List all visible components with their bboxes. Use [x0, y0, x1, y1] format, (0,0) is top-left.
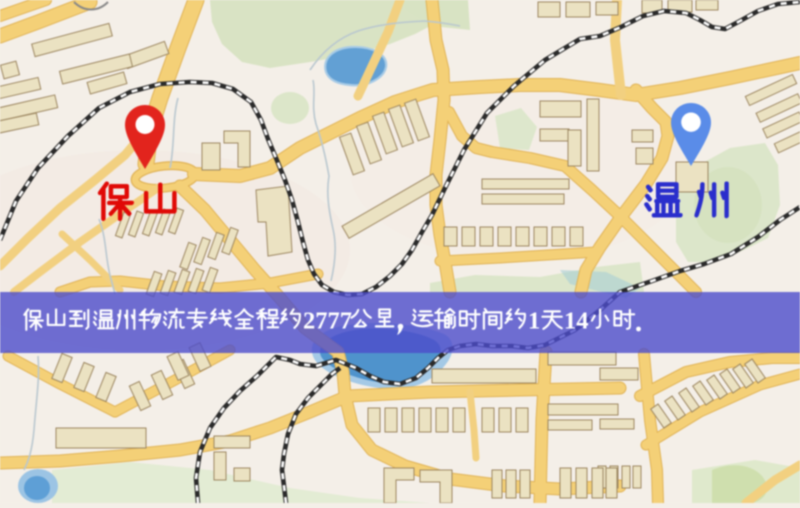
svg-text:2777: 2777 — [303, 308, 352, 335]
svg-text:14: 14 — [564, 308, 589, 335]
svg-text:1: 1 — [528, 308, 540, 335]
